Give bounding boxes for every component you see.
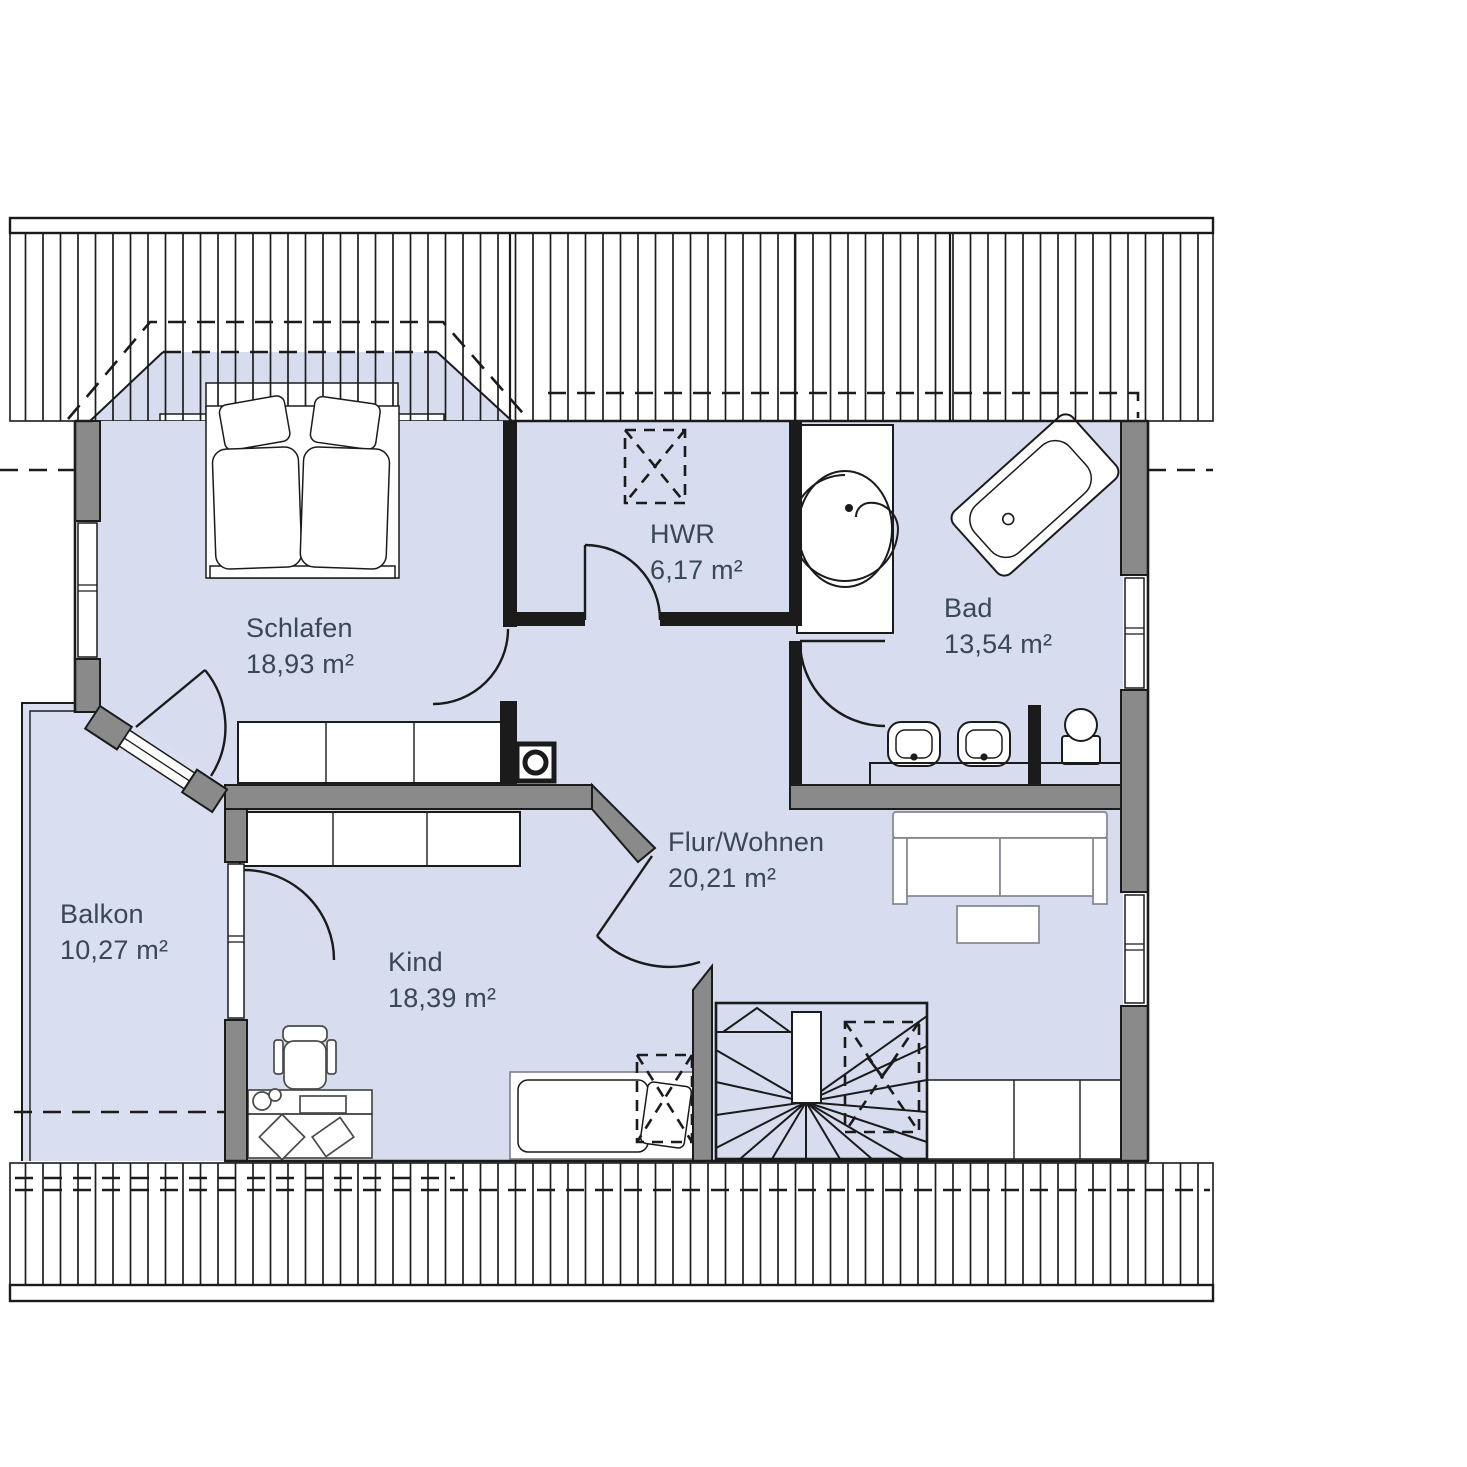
floor-plan-canvas xyxy=(0,0,1467,1467)
window xyxy=(1125,578,1144,688)
stair-well xyxy=(792,1012,821,1103)
room-area: 13,54 m² xyxy=(944,628,1052,662)
room-label-schlafen: Schlafen 18,93 m² xyxy=(246,612,354,682)
room-name: Kind xyxy=(388,946,496,980)
bed-double xyxy=(206,395,399,578)
room-label-balkon: Balkon 10,27 m² xyxy=(60,898,168,968)
central-wall xyxy=(225,785,592,809)
room-area: 20,21 m² xyxy=(668,862,824,896)
coffee-table xyxy=(957,906,1039,943)
knee-storage xyxy=(927,1080,1121,1159)
balcony-door-kind xyxy=(228,864,244,1018)
desk-chair xyxy=(274,1026,336,1089)
stair-wall xyxy=(693,966,712,1161)
sink xyxy=(958,722,1010,766)
desk xyxy=(248,1089,372,1160)
sofa xyxy=(893,812,1107,904)
room-name: HWR xyxy=(650,518,743,552)
shower xyxy=(792,425,898,633)
room-label-hwr: HWR 6,17 m² xyxy=(650,518,743,588)
room-name: Schlafen xyxy=(246,612,354,646)
window xyxy=(78,523,97,657)
roof-top xyxy=(10,218,1213,436)
wardrobe-schlafen xyxy=(238,722,503,783)
room-label-bad: Bad 13,54 m² xyxy=(944,592,1052,662)
room-area: 18,39 m² xyxy=(388,982,496,1016)
room-area: 10,27 m² xyxy=(60,934,168,968)
room-label-kind: Kind 18,39 m² xyxy=(388,946,496,1016)
toilet xyxy=(1062,709,1100,764)
roof-bottom xyxy=(10,1163,1213,1301)
room-area: 6,17 m² xyxy=(650,554,743,588)
room-label-flur-wohnen: Flur/Wohnen 20,21 m² xyxy=(668,826,824,896)
chimney-symbol xyxy=(517,744,554,781)
floor-plan: Schlafen 18,93 m² HWR 6,17 m² Bad 13,54 … xyxy=(0,0,1467,1467)
sink xyxy=(888,722,940,766)
room-name: Balkon xyxy=(60,898,168,932)
room-name: Flur/Wohnen xyxy=(668,826,824,860)
window xyxy=(1125,895,1144,1003)
wardrobe-kind xyxy=(240,812,520,866)
room-name: Bad xyxy=(944,592,1052,626)
bed-single xyxy=(510,1072,694,1159)
bad-flur-wall xyxy=(790,785,1121,809)
room-area: 18,93 m² xyxy=(246,648,354,682)
